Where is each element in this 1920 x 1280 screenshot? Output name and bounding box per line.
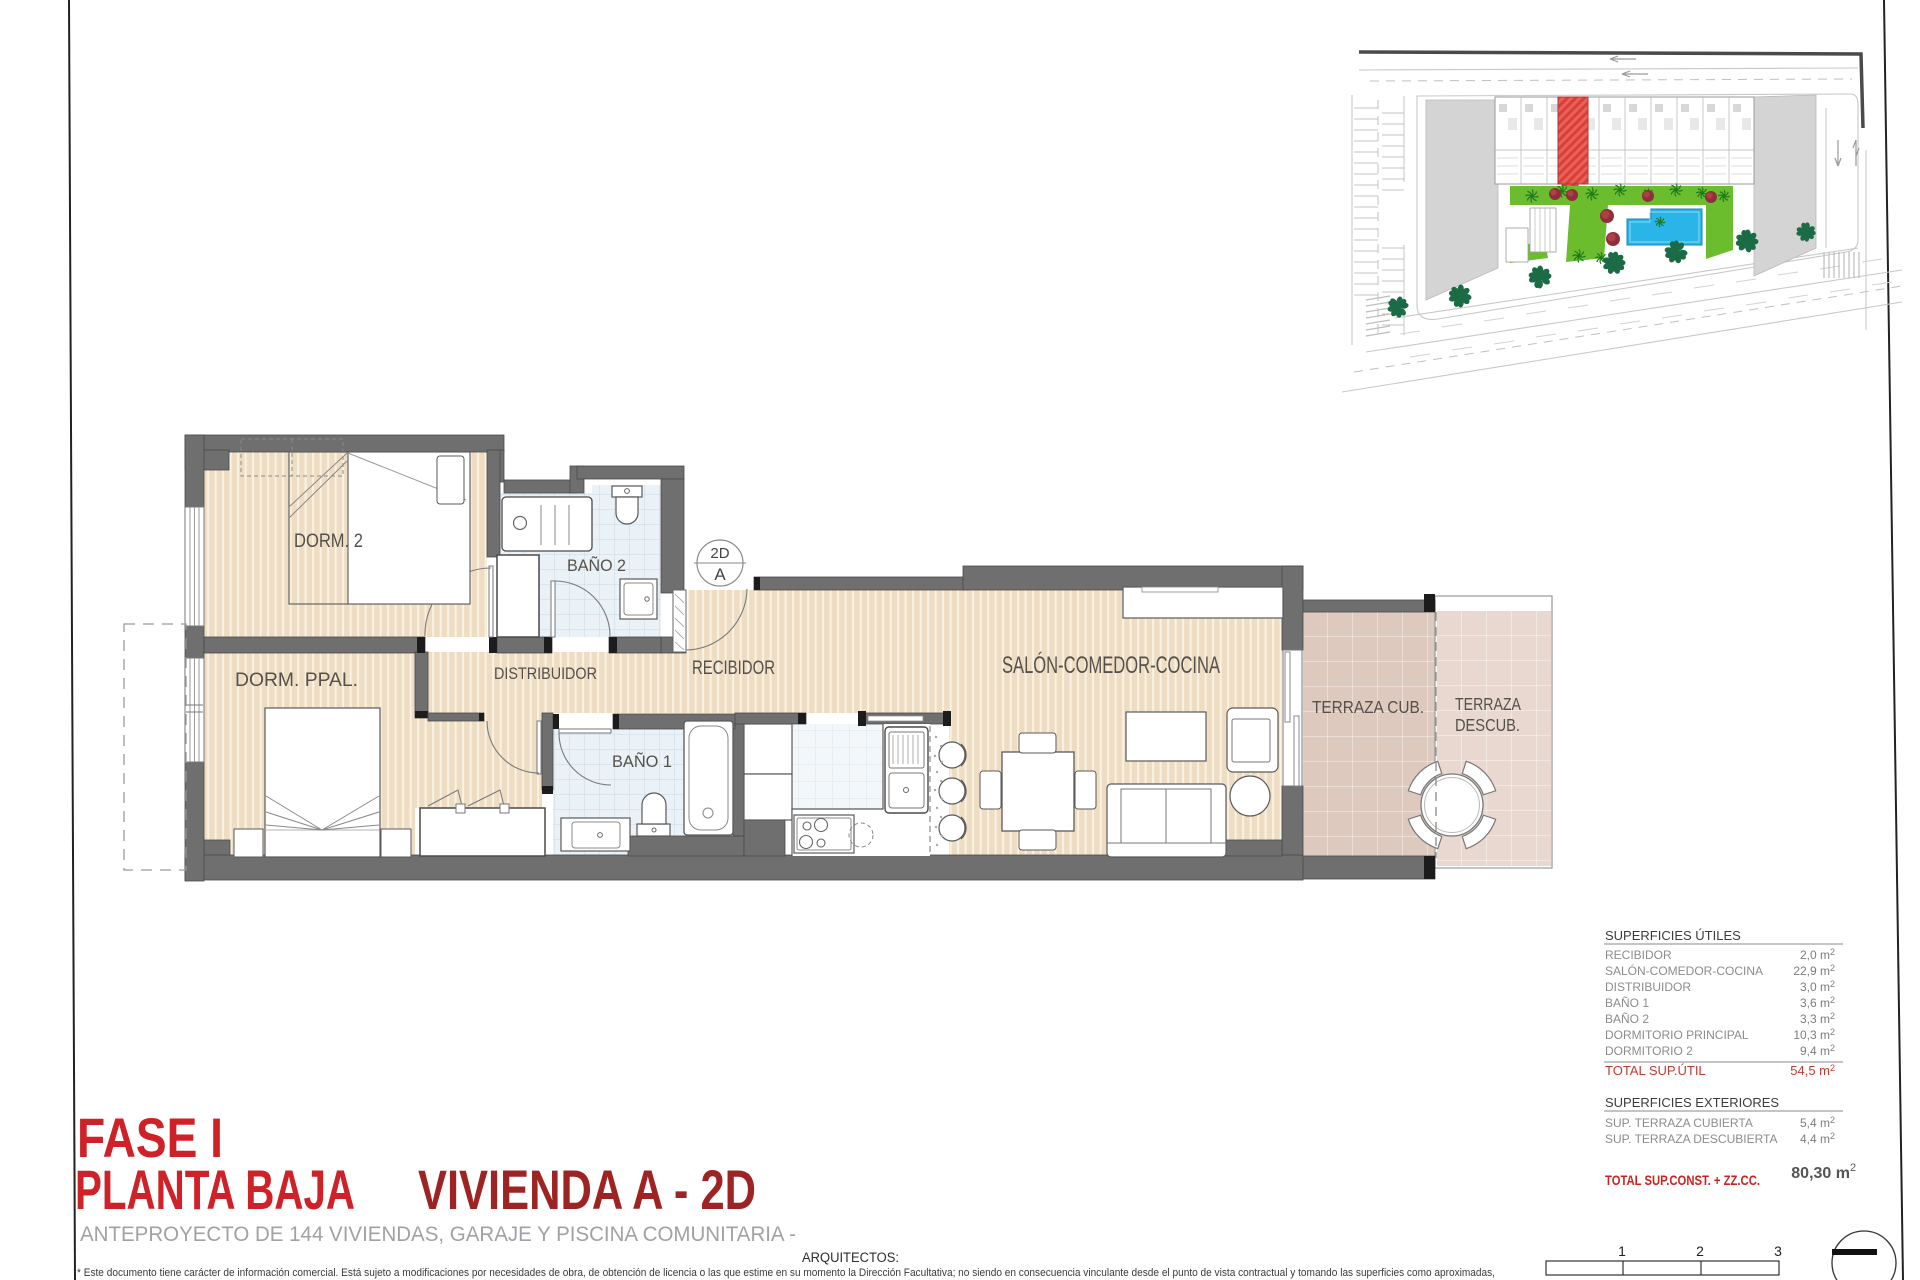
svg-text:1: 1 xyxy=(1618,1243,1626,1259)
svg-text:22,9 m: 22,9 m xyxy=(1793,964,1830,978)
svg-text:2: 2 xyxy=(1830,963,1835,973)
svg-text:3,6 m: 3,6 m xyxy=(1800,996,1830,1010)
svg-text:SALÓN-COMEDOR-COCINA: SALÓN-COMEDOR-COCINA xyxy=(1605,963,1763,978)
svg-text:2: 2 xyxy=(1830,1011,1835,1021)
svg-text:SUPERFICIES ÚTILES: SUPERFICIES ÚTILES xyxy=(1605,928,1741,943)
svg-text:BAÑO 1: BAÑO 1 xyxy=(1605,996,1649,1010)
svg-text:DESCUB.: DESCUB. xyxy=(1455,715,1520,735)
svg-text:BAÑO 2: BAÑO 2 xyxy=(567,556,626,575)
svg-text:DORM. PPAL.: DORM. PPAL. xyxy=(235,669,358,691)
svg-text:SUP. TERRAZA CUBIERTA: SUP. TERRAZA CUBIERTA xyxy=(1605,1116,1753,1130)
svg-text:DORM. 2: DORM. 2 xyxy=(294,530,363,552)
svg-text:ARQUITECTOS:: ARQUITECTOS: xyxy=(802,1250,899,1265)
svg-text:5,4 m: 5,4 m xyxy=(1800,1116,1830,1130)
svg-text:DISTRIBUIDOR: DISTRIBUIDOR xyxy=(494,665,597,683)
svg-text:SUP. TERRAZA DESCUBIERTA: SUP. TERRAZA DESCUBIERTA xyxy=(1605,1132,1778,1146)
svg-text:2: 2 xyxy=(1830,947,1835,957)
svg-text:54,5 m: 54,5 m xyxy=(1790,1063,1830,1078)
svg-text:2: 2 xyxy=(1830,1063,1835,1073)
svg-text:TOTAL SUP.ÚTIL: TOTAL SUP.ÚTIL xyxy=(1605,1063,1706,1078)
svg-text:ANTEPROYECTO DE 144 VIVIENDAS,: ANTEPROYECTO DE 144 VIVIENDAS, GARAJE Y … xyxy=(80,1223,796,1246)
svg-text:TERRAZA: TERRAZA xyxy=(1455,694,1521,714)
svg-text:PLANTA BAJA: PLANTA BAJA xyxy=(75,1158,355,1221)
svg-text:TOTAL SUP.CONST. + ZZ.CC.: TOTAL SUP.CONST. + ZZ.CC. xyxy=(1605,1173,1760,1188)
svg-text:* Este documento tiene carácte: * Este documento tiene carácter de infor… xyxy=(77,1267,1495,1279)
svg-text:VIVIENDA A - 2D: VIVIENDA A - 2D xyxy=(418,1158,756,1221)
svg-text:10,3 m: 10,3 m xyxy=(1793,1028,1830,1042)
svg-text:2: 2 xyxy=(1830,995,1835,1005)
svg-text:DORMITORIO PRINCIPAL: DORMITORIO PRINCIPAL xyxy=(1605,1028,1749,1042)
svg-text:2: 2 xyxy=(1830,1043,1835,1053)
svg-text:RECIBIDOR: RECIBIDOR xyxy=(692,657,775,679)
svg-text:2: 2 xyxy=(1696,1243,1704,1259)
svg-text:A: A xyxy=(714,565,726,584)
svg-text:3,3 m: 3,3 m xyxy=(1800,1012,1830,1026)
svg-text:2: 2 xyxy=(1830,979,1835,989)
svg-text:2: 2 xyxy=(1850,1162,1856,1174)
svg-text:2: 2 xyxy=(1830,1027,1835,1037)
svg-text:2,0 m: 2,0 m xyxy=(1800,948,1830,962)
svg-text:SALÓN-COMEDOR-COCINA: SALÓN-COMEDOR-COCINA xyxy=(1002,652,1220,679)
svg-text:2: 2 xyxy=(1830,1115,1835,1125)
svg-text:BAÑO 1: BAÑO 1 xyxy=(612,752,672,771)
svg-text:BAÑO 2: BAÑO 2 xyxy=(1605,1012,1649,1026)
svg-text:DORMITORIO 2: DORMITORIO 2 xyxy=(1605,1044,1693,1058)
svg-text:SUPERFICIES EXTERIORES: SUPERFICIES EXTERIORES xyxy=(1605,1095,1779,1110)
svg-text:DISTRIBUIDOR: DISTRIBUIDOR xyxy=(1605,980,1691,994)
svg-text:2: 2 xyxy=(1830,1131,1835,1141)
svg-text:3,0 m: 3,0 m xyxy=(1800,980,1830,994)
svg-text:3: 3 xyxy=(1774,1243,1782,1259)
svg-text:9,4 m: 9,4 m xyxy=(1800,1044,1830,1058)
svg-text:2D: 2D xyxy=(710,545,729,562)
svg-text:RECIBIDOR: RECIBIDOR xyxy=(1605,948,1672,962)
svg-text:4,4 m: 4,4 m xyxy=(1800,1132,1830,1146)
svg-text:80,30 m: 80,30 m xyxy=(1791,1165,1850,1182)
svg-text:TERRAZA CUB.: TERRAZA CUB. xyxy=(1312,697,1424,717)
